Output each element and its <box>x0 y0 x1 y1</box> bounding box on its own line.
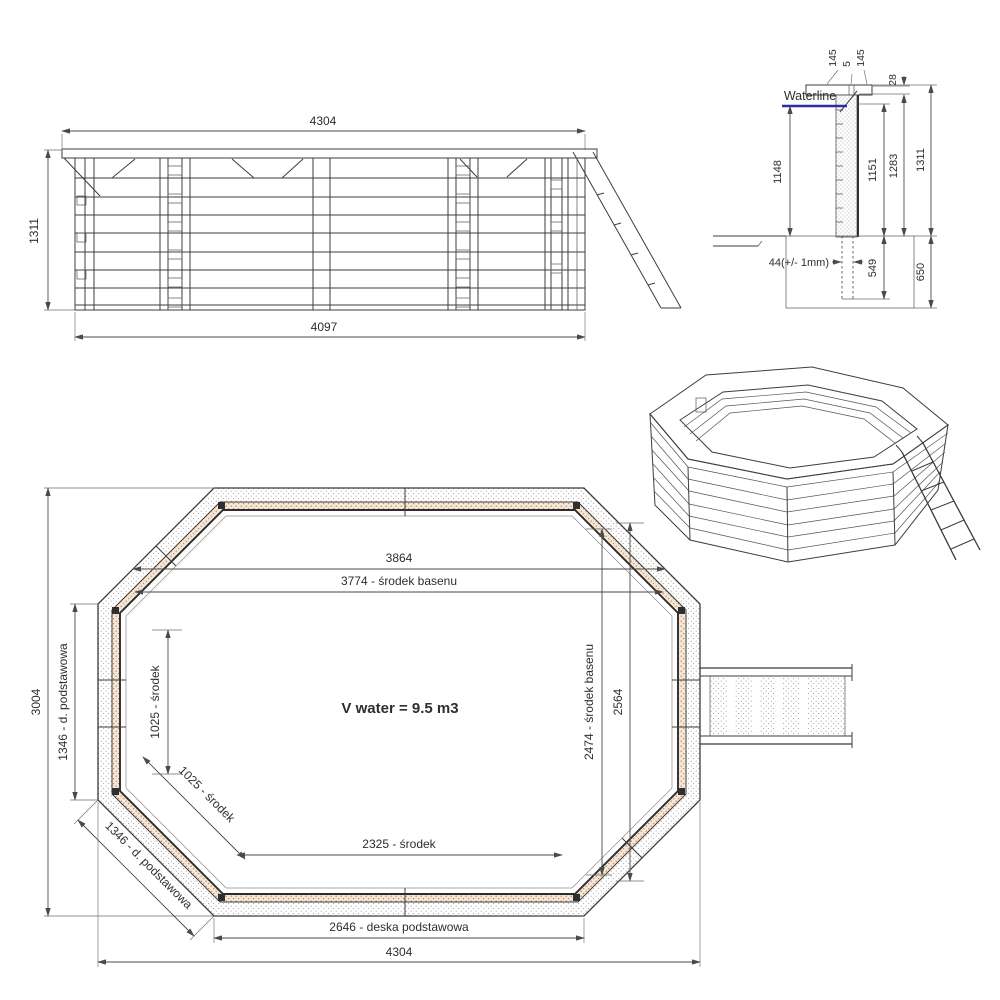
plan-dim-pool-center-width-label: 3774 - środek basenu <box>341 574 457 588</box>
section-foundation <box>786 236 914 308</box>
section-dim-post-embed-label: 549 <box>867 259 879 277</box>
side-view-ladder <box>573 152 681 308</box>
plan-dim-bottom-center-label: 2325 - środek <box>362 837 436 851</box>
plan-dim-side-center-left: 1025 - środek <box>148 630 182 774</box>
section-dim-waterline-depth: 1148 <box>772 106 790 236</box>
plan-dim-side-center-left-label: 1025 - środek <box>148 664 162 738</box>
side-elevation-view: 4304 1311 4097 <box>27 114 681 341</box>
plan-ladder <box>700 664 852 748</box>
plan-dim-top-width-label: 3864 <box>386 551 413 565</box>
section-dim-cap-outer-label: 145 <box>827 49 839 67</box>
section-dim-total-height: 1311 650 <box>872 85 937 308</box>
perspective-wall-planks <box>651 436 946 550</box>
section-dim-cap-thickness-label: 28 <box>887 74 899 86</box>
side-dim-bottom-width: 4097 <box>75 312 585 341</box>
section-dim-post-embed: 549 <box>853 236 890 299</box>
plan-dim-side-board-left: 1346 - d. podstawowa <box>56 604 98 800</box>
plan-dim-bottom-center: 2325 - środek <box>237 837 562 855</box>
technical-drawing-page: 4304 1311 4097 145 5 145 <box>0 0 1000 1000</box>
plan-dim-right-height-label: 2564 <box>611 688 625 715</box>
side-view-posts <box>77 158 577 310</box>
side-dim-top-width: 4304 <box>62 114 585 150</box>
plan-dim-top-width: 3864 <box>133 551 665 569</box>
skimmer-box <box>696 398 706 412</box>
section-dim-plank-thickness: 44(+/- 1mm) <box>769 257 863 269</box>
section-dim-wall-outer: 1283 <box>888 95 904 236</box>
waterline-label: Waterline <box>784 89 836 103</box>
section-dim-wall-outer-label: 1283 <box>888 154 900 178</box>
section-dim-waterline-depth-label: 1148 <box>772 160 784 184</box>
side-dim-height: 1311 <box>27 150 75 310</box>
plan-dim-pool-center-width: 3774 - środek basenu <box>135 574 663 592</box>
plan-dim-pool-center-height: 2474 - środek basenu <box>582 529 612 875</box>
section-dim-cap-gap-label: 5 <box>841 61 853 67</box>
section-dim-cap-thickness: 28 <box>859 74 910 104</box>
section-dim-wall-inner: 1151 <box>858 104 890 236</box>
section-dim-wall-inner-label: 1151 <box>867 158 879 182</box>
perspective-ladder <box>896 436 980 560</box>
plan-dim-pool-center-height-label: 2474 - środek basenu <box>582 644 596 760</box>
plan-dim-diag-center-label: 1025 - środek <box>176 763 238 825</box>
plan-dim-bottom-board-label: 2646 - deska podstawowa <box>329 920 469 934</box>
side-dim-top-width-label: 4304 <box>310 114 337 128</box>
perspective-view <box>650 367 980 562</box>
volume-label: V water = 9.5 m3 <box>341 700 458 717</box>
section-dim-cap: 145 5 145 <box>827 49 867 84</box>
section-dim-total-height-label: 1311 <box>915 148 927 172</box>
section-dim-cap-inner-label: 145 <box>855 49 867 67</box>
plan-dim-side-board-left-label: 1346 - d. podstawowa <box>56 643 70 761</box>
plan-dim-right-height: 2564 <box>611 523 644 881</box>
plan-dim-overall-height-label: 3004 <box>29 688 43 715</box>
side-dim-height-label: 1311 <box>27 218 41 244</box>
plan-view: V water = 9.5 m3 3864 3774 - środek base… <box>29 488 852 967</box>
plan-dim-bottom-board: 2646 - deska podstawowa <box>214 918 584 943</box>
technical-drawing-canvas: 4304 1311 4097 145 5 145 <box>0 0 1000 1000</box>
plan-dim-overall-width-label: 4304 <box>386 945 413 959</box>
section-dim-plank-thickness-label: 44(+/- 1mm) <box>769 257 829 269</box>
wall-section-view: 145 5 145 28 Wa <box>713 49 937 308</box>
side-dim-bottom-width-label: 4097 <box>311 320 338 334</box>
section-dim-foundation-depth-label: 650 <box>915 263 927 281</box>
section-buried-post <box>842 236 853 299</box>
